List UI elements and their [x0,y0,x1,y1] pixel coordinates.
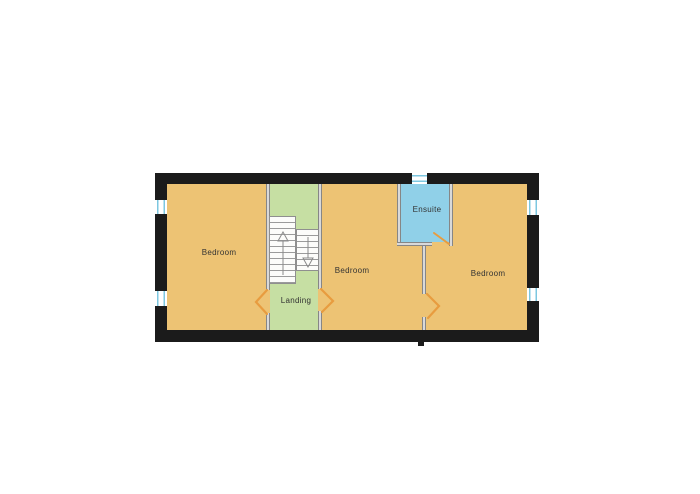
window-icon [412,173,427,184]
up-arrow-icon [270,217,297,285]
window-icon [527,200,539,215]
room-label-landing: Landing [281,297,312,305]
window-icon [527,288,539,301]
floor-area [167,184,527,330]
scanned-page: Bedroom Landing Bedroom Ensuite Bedroom [0,0,700,494]
staircase-down-flight [296,229,319,271]
room-label-ensuite: Ensuite [413,206,442,214]
window-icon [155,291,167,306]
bedroom-divider-wall-stub [422,317,426,330]
room-label-bedroom-middle: Bedroom [335,267,370,275]
landing-wall-left-stub [266,313,270,330]
ensuite-wall-left [397,184,401,246]
ensuite-wall-right [449,184,453,246]
staircase-up-flight [269,216,296,284]
floor-plan: Bedroom Landing Bedroom Ensuite Bedroom [155,173,539,342]
window-icon [155,200,167,214]
bedroom-divider-wall [422,246,426,294]
wall-nub [418,342,424,346]
ensuite-wall-bottom [397,242,432,246]
down-arrow-icon [297,230,320,272]
room-label-bedroom-right: Bedroom [471,270,506,278]
room-label-bedroom-left: Bedroom [202,249,237,257]
landing-wall-right-stub [318,311,322,330]
